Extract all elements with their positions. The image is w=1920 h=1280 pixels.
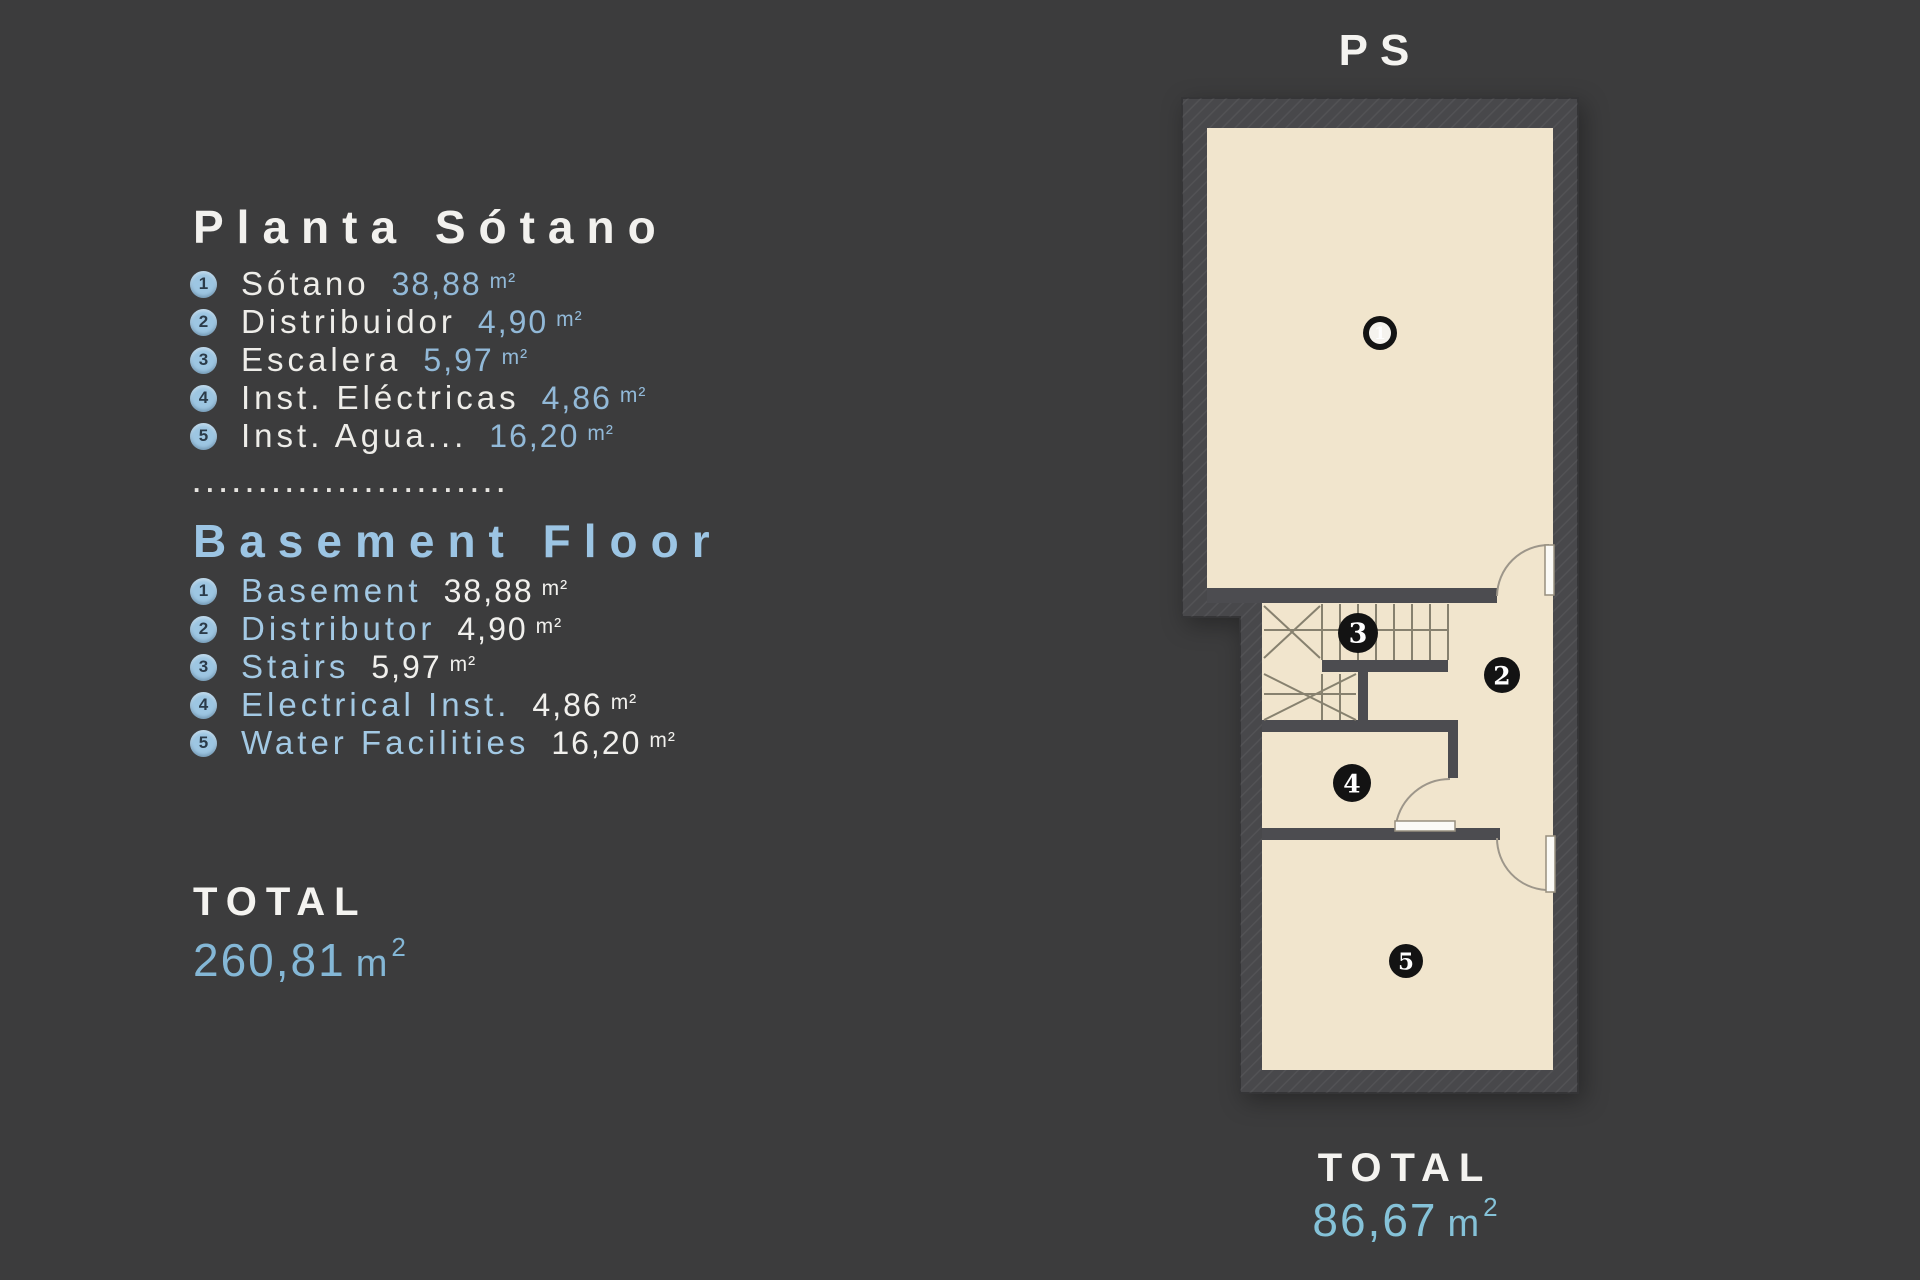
list-item: 3 Stairs 5,97 m² — [190, 648, 676, 686]
room-area-value: 16,20 — [551, 725, 641, 762]
room-label: Sótano — [241, 265, 370, 303]
room-label: Electrical Inst. — [241, 686, 510, 724]
list-item: 3 Escalera 5,97 m² — [190, 341, 646, 379]
floor-plan: 1 2 3 4 5 — [1130, 80, 1630, 1120]
room-area-value: 4,90 — [478, 304, 548, 341]
room-badge-5: 5 — [1389, 944, 1423, 978]
legend-list-english: 1 Basement 38,88 m² 2 Distributor 4,90 m… — [190, 572, 676, 762]
room-area-value: 5,97 — [423, 342, 493, 379]
page-title-english: Basement Floor — [193, 514, 723, 568]
list-item: 4 Inst. Eléctricas 4,86 m² — [190, 379, 646, 417]
room-area-value: 38,88 — [392, 266, 482, 303]
room-label: Distributor — [241, 610, 435, 648]
room-area-value: 16,20 — [489, 418, 579, 455]
room-label: Inst. Agua... — [241, 417, 467, 455]
page-title-spanish: Planta Sótano — [193, 200, 669, 254]
total-label: TOTAL — [1205, 1146, 1605, 1191]
room-area-value: 4,86 — [532, 687, 602, 724]
room-area-unit: m² — [450, 653, 477, 677]
room-label: Inst. Eléctricas — [241, 379, 520, 417]
list-item: 5 Water Facilities 16,20 m² — [190, 724, 676, 762]
plan-title: PS — [1180, 26, 1580, 76]
room-label: Water Facilities — [241, 724, 529, 762]
room-label: Basement — [241, 572, 422, 610]
number-badge-icon: 3 — [190, 654, 217, 681]
room-badge-2: 2 — [1484, 657, 1520, 693]
list-item: 2 Distributor 4,90 m² — [190, 610, 676, 648]
number-badge-icon: 1 — [190, 578, 217, 605]
room-area-value: 5,97 — [371, 649, 441, 686]
room-area-value: 4,86 — [542, 380, 612, 417]
total-value: 86,67m2 — [1205, 1193, 1605, 1247]
list-item: 2 Distribuidor 4,90 m² — [190, 303, 646, 341]
room-area-unit: m² — [542, 577, 569, 601]
svg-text:4: 4 — [1343, 770, 1360, 799]
list-item: 5 Inst. Agua... 16,20 m² — [190, 417, 646, 455]
total-block-plan: TOTAL 86,67m2 — [1205, 1146, 1605, 1247]
room-area-unit: m² — [490, 270, 517, 294]
legend-list-spanish: 1 Sótano 38,88 m² 2 Distribuidor 4,90 m²… — [190, 265, 646, 455]
room-badge-4: 4 — [1333, 764, 1371, 802]
room-area-unit: m² — [587, 422, 614, 446]
number-badge-icon: 5 — [190, 730, 217, 757]
interior-wall — [1262, 828, 1500, 840]
dotted-separator: ........................ — [193, 468, 510, 499]
list-item: 1 Basement 38,88 m² — [190, 572, 676, 610]
door-leaf — [1395, 821, 1455, 831]
room-area-unit: m² — [556, 308, 583, 332]
room-area-unit: m² — [611, 691, 638, 715]
svg-text:3: 3 — [1349, 619, 1368, 650]
room-area-unit: m² — [620, 384, 647, 408]
number-badge-icon: 5 — [190, 423, 217, 450]
svg-text:5: 5 — [1398, 949, 1414, 976]
svg-text:2: 2 — [1493, 662, 1510, 691]
total-value: 260,81m2 — [193, 933, 406, 987]
list-item: 4 Electrical Inst. 4,86 m² — [190, 686, 676, 724]
number-badge-icon: 4 — [190, 692, 217, 719]
number-badge-icon: 2 — [190, 309, 217, 336]
interior-wall — [1448, 732, 1458, 778]
total-label: TOTAL — [193, 880, 406, 925]
door-leaf — [1545, 545, 1554, 595]
interior-wall — [1207, 588, 1497, 603]
interior-wall — [1262, 720, 1458, 732]
interior-wall — [1322, 660, 1448, 672]
room-label: Escalera — [241, 341, 401, 379]
room-badge-1: 1 — [1363, 316, 1397, 350]
number-badge-icon: 3 — [190, 347, 217, 374]
total-block-left: TOTAL 260,81m2 — [193, 880, 406, 987]
number-badge-icon: 4 — [190, 385, 217, 412]
room-area-unit: m² — [536, 615, 563, 639]
room-label: Stairs — [241, 648, 349, 686]
room-area-unit: m² — [502, 346, 529, 370]
room-badge-3: 3 — [1338, 613, 1378, 653]
room-label: Distribuidor — [241, 303, 456, 341]
room-area-unit: m² — [649, 729, 676, 753]
number-badge-icon: 1 — [190, 271, 217, 298]
room-area-value: 38,88 — [444, 573, 534, 610]
number-badge-icon: 2 — [190, 616, 217, 643]
list-item: 1 Sótano 38,88 m² — [190, 265, 646, 303]
door-leaf — [1546, 836, 1555, 892]
svg-text:1: 1 — [1374, 324, 1386, 344]
room-area-value: 4,90 — [457, 611, 527, 648]
